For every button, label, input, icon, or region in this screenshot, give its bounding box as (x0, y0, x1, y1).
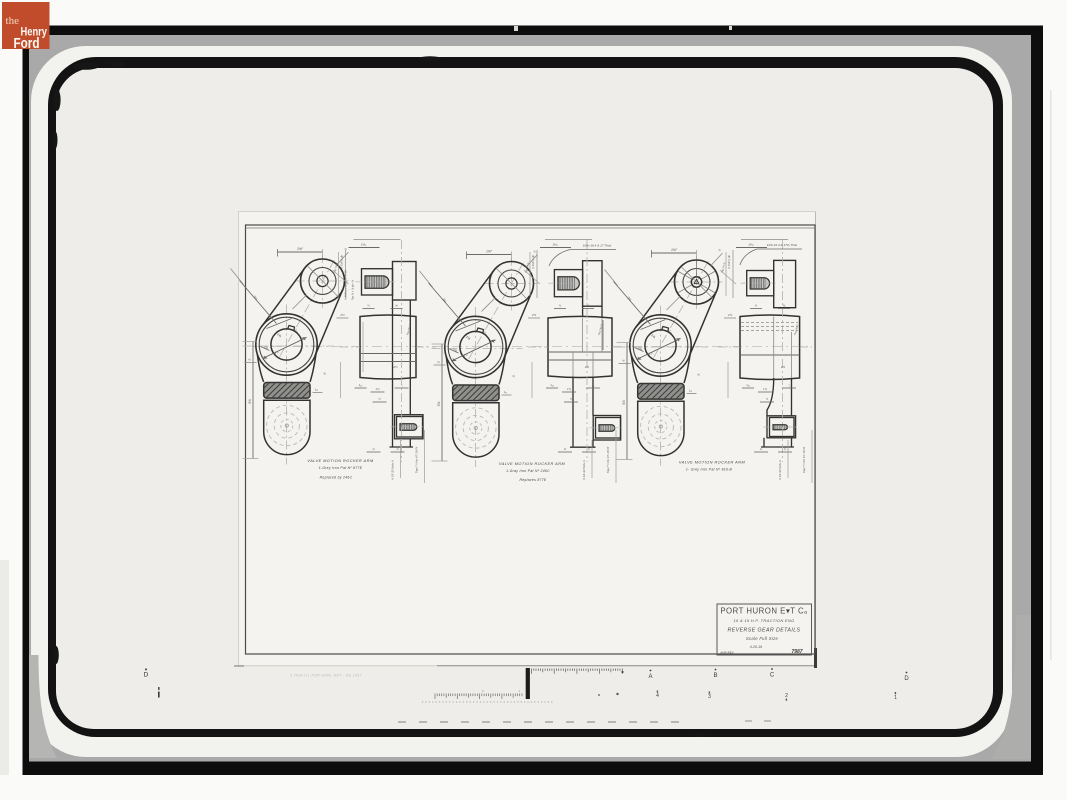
svg-text:Tap f ½ for #7-16 Pt: Tap f ½ for #7-16 Pt (802, 447, 806, 474)
svg-text:3: 3 (708, 694, 711, 700)
svg-text:VALVE MOTION ROCKER ARM: VALVE MOTION ROCKER ARM (679, 461, 746, 465)
svg-text:D: D (904, 676, 909, 682)
svg-text:Tap ⅜ × ⅞ dp • ¼: Tap ⅜ × ⅞ dp • ¼ (351, 279, 355, 300)
svg-text:1⅛″: 1⅛″ (486, 250, 493, 254)
svg-text:Ford: Ford (14, 36, 40, 52)
svg-text:Tap f ½ for #7-16 Pt: Tap f ½ for #7-16 Pt (606, 447, 610, 474)
svg-text:2½: 2½ (584, 365, 590, 369)
svg-text:10⅝ 16.4 & 17⅛ Thds: 10⅝ 16.4 & 17⅛ Thds (767, 243, 798, 247)
svg-text:A: A (648, 674, 652, 680)
svg-text:Replaces 877E: Replaces 877E (520, 478, 547, 482)
svg-text:1⅓₂: 1⅓₂ (748, 243, 754, 247)
svg-text:1₁₁: 1₁₁ (315, 388, 318, 392)
svg-text:⁼₁: ⁼₁ (788, 383, 790, 387)
svg-text:1⅞: 1⅞ (567, 387, 572, 391)
svg-text:2½: 2½ (727, 313, 733, 317)
svg-text:VALVE MOTION ROCKER ARM: VALVE MOTION ROCKER ARM (499, 462, 566, 466)
svg-text:4: 4 (656, 693, 659, 699)
svg-text:2½: 2½ (531, 313, 537, 317)
svg-text:# 10-32 thds A: # 10-32 thds A (778, 460, 782, 479)
svg-text:# 10-32 thds A: # 10-32 thds A (582, 460, 586, 479)
svg-text:VALVE MOTION ROCKER ARM: VALVE MOTION ROCKER ARM (307, 459, 374, 463)
svg-text:1⅞: 1⅞ (763, 387, 768, 391)
svg-text:⅜ Drill ⅞ dp: ⅜ Drill ⅞ dp (531, 255, 535, 269)
svg-text:⁼₁: ⁼₁ (592, 383, 594, 387)
svg-text:1-Gray Iron Pat Nº 246C: 1-Gray Iron Pat Nº 246C (506, 469, 550, 473)
svg-text:5⅞: 5⅞ (622, 400, 626, 405)
svg-text:Replaced by 246C: Replaced by 246C (320, 476, 353, 480)
svg-text:4-26-16: 4-26-16 (750, 645, 762, 649)
svg-text:the: the (6, 15, 20, 27)
svg-text:2: 2 (785, 693, 788, 699)
svg-text:5⅞: 5⅞ (437, 401, 441, 406)
svg-text:2½: 2½ (392, 365, 398, 369)
svg-text:C: C (770, 673, 775, 679)
svg-text:AHR-REV: AHR-REV (719, 651, 735, 655)
svg-text:REVERSE GEAR DETAILS: REVERSE GEAR DETAILS (728, 628, 801, 634)
svg-text:1- Grey Iron Pat Nº 816-B: 1- Grey Iron Pat Nº 816-B (686, 468, 733, 472)
svg-text:⅜ Drill ₁₇₌₂ deep for #7-16: ⅜ Drill ₁₇₌₂ deep for #7-16 (344, 270, 348, 300)
svg-text:7987: 7987 (791, 649, 802, 655)
svg-text:1⅛″: 1⅛″ (671, 248, 678, 252)
svg-text:1⅛″: 1⅛″ (297, 247, 304, 251)
svg-text:Scale Full Size: Scale Full Size (746, 636, 779, 641)
svg-text:Tap f ½ for #7-16 Pt: Tap f ½ for #7-16 Pt (415, 447, 419, 474)
svg-text:⁼₁: ⁼₁ (400, 383, 402, 387)
svg-text:2 7036 ILL POR GHRL DET - DE: 2 7036 ILL POR GHRL DET - DE 1957 (289, 674, 362, 678)
svg-text:D: D (144, 672, 149, 679)
svg-text:1⅞: 1⅞ (376, 387, 381, 391)
svg-text:16 & 19 H.P. TRACTION ENG: 16 & 19 H.P. TRACTION ENG (734, 618, 795, 623)
svg-text:2½: 2½ (339, 313, 345, 317)
svg-text:10⅝–16.4 & 17 Thds: 10⅝–16.4 & 17 Thds (583, 244, 612, 248)
svg-text:1-Grey Iron Pat Nº 877E: 1-Grey Iron Pat Nº 877E (319, 466, 363, 470)
svg-text:1⅓₂: 1⅓₂ (552, 243, 558, 247)
svg-text:1₁₁: 1₁₁ (689, 389, 692, 393)
svg-text:1₁₁: 1₁₁ (504, 390, 507, 394)
svg-text:5⅞: 5⅞ (248, 399, 252, 404)
svg-text:PORT HURON E▾T Cₒ: PORT HURON E▾T Cₒ (720, 607, 807, 616)
svg-text:1: 1 (894, 695, 897, 701)
svg-text:1⅓₂: 1⅓₂ (361, 243, 367, 247)
svg-text:2½: 2½ (780, 365, 786, 369)
svg-text:# 10-32 thds A: # 10-32 thds A (391, 460, 395, 479)
svg-text:⅜ Drill ⅞ dp: ⅜ Drill ⅞ dp (727, 255, 731, 269)
svg-text:⅜ Drill ⅞ dp: ⅜ Drill ⅞ dp (340, 255, 344, 269)
svg-text:B: B (713, 673, 717, 679)
